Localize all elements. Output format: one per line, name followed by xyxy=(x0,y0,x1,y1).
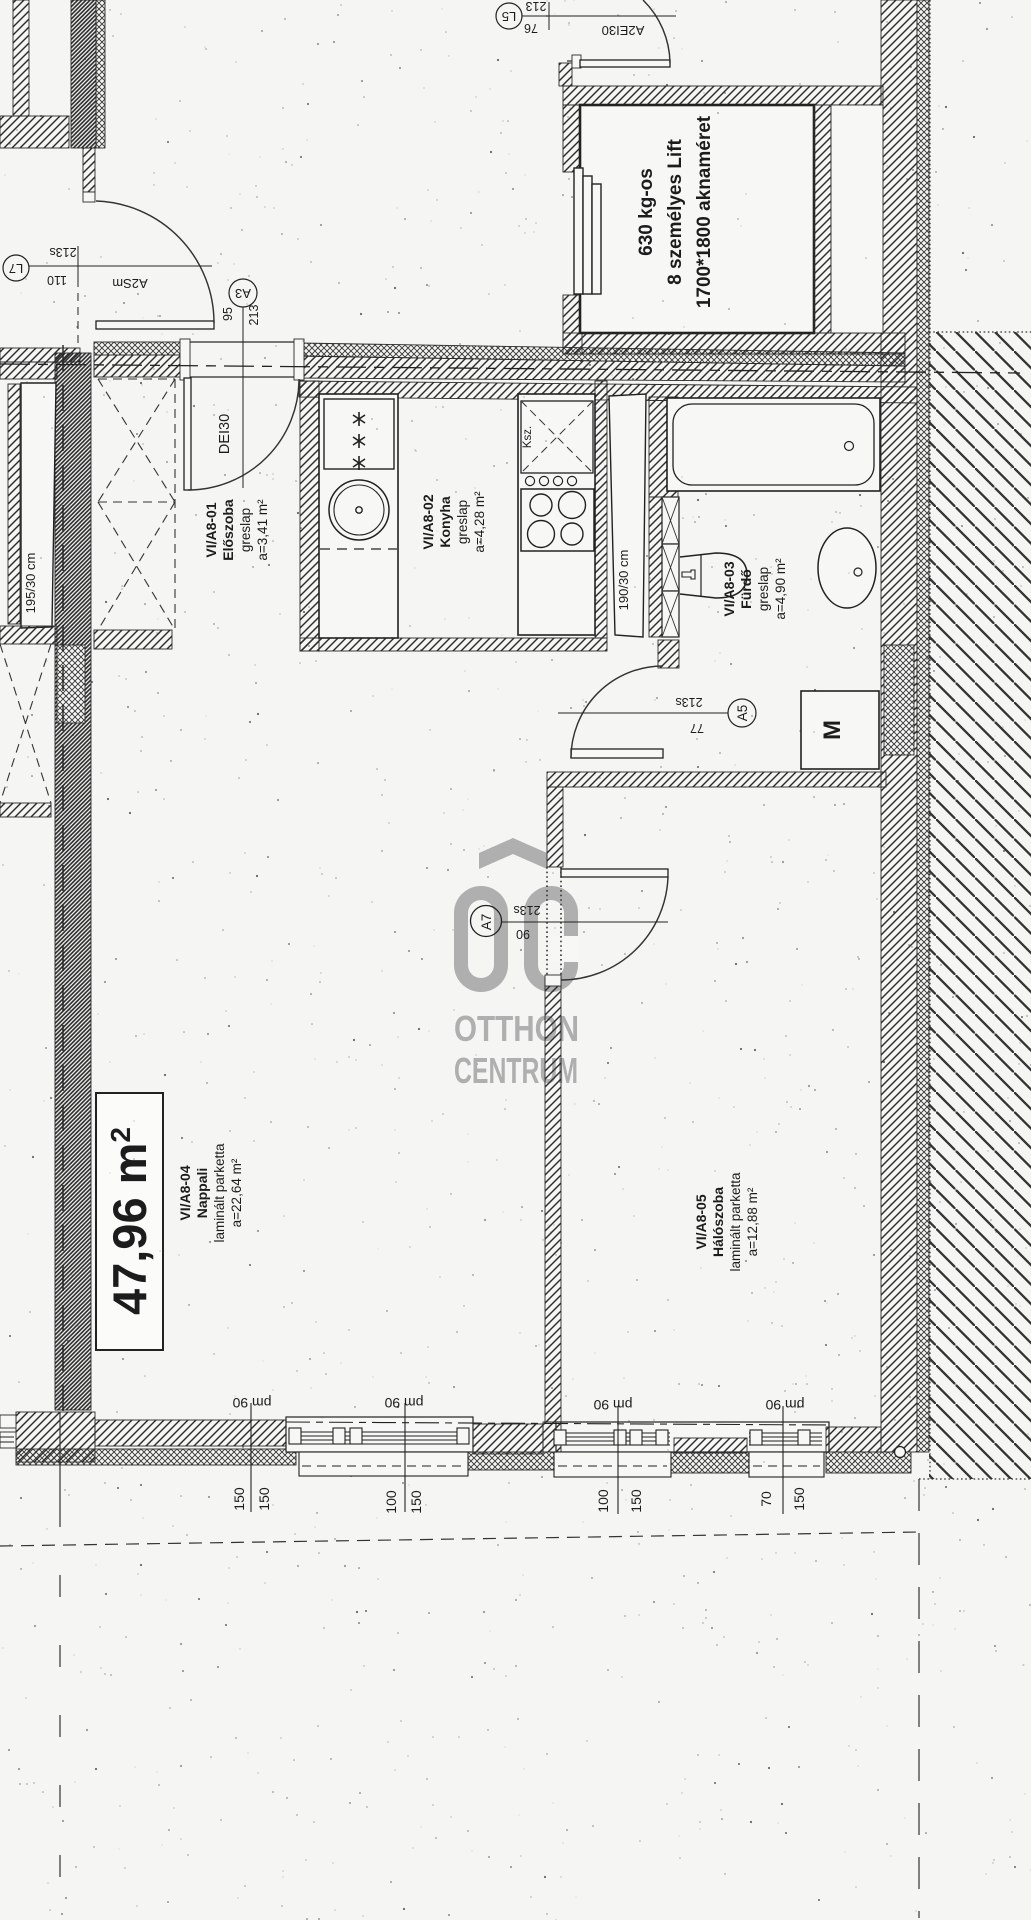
svg-text:pm 90: pm 90 xyxy=(765,1397,804,1413)
svg-text:70: 70 xyxy=(758,1491,774,1507)
svg-text:pm 90: pm 90 xyxy=(593,1397,632,1413)
svg-text:76: 76 xyxy=(524,21,538,35)
svg-text:150: 150 xyxy=(231,1487,247,1511)
svg-text:Fürdő: Fürdő xyxy=(738,569,754,609)
svg-text:L7: L7 xyxy=(9,261,23,276)
svg-text:VI/A8-04: VI/A8-04 xyxy=(177,1165,193,1220)
svg-text:100: 100 xyxy=(595,1489,611,1513)
svg-text:VI/A8-03: VI/A8-03 xyxy=(721,561,737,616)
svg-text:150: 150 xyxy=(408,1490,424,1514)
svg-text:L5: L5 xyxy=(502,9,516,24)
svg-text:213s: 213s xyxy=(675,695,702,709)
svg-text:A2EI30: A2EI30 xyxy=(602,23,645,38)
svg-text:Előszoba: Előszoba xyxy=(220,499,236,561)
svg-text:150: 150 xyxy=(791,1487,807,1511)
svg-text:Ksz.: Ksz. xyxy=(522,426,534,448)
svg-text:a=22,64 m²: a=22,64 m² xyxy=(229,1158,244,1227)
svg-text:greslap: greslap xyxy=(238,508,253,552)
svg-text:a=12,88 m²: a=12,88 m² xyxy=(745,1187,760,1256)
svg-text:A3: A3 xyxy=(235,286,251,301)
svg-text:greslap: greslap xyxy=(455,500,470,544)
svg-text:laminált parketta: laminált parketta xyxy=(212,1143,227,1243)
svg-text:VI/A8-02: VI/A8-02 xyxy=(420,494,436,549)
svg-text:77: 77 xyxy=(690,721,704,735)
svg-text:laminált parketta: laminált parketta xyxy=(728,1172,743,1272)
svg-text:DEI30: DEI30 xyxy=(217,414,233,454)
svg-text:213: 213 xyxy=(526,0,547,13)
svg-text:A7: A7 xyxy=(479,914,494,931)
svg-text:213s: 213s xyxy=(49,245,76,259)
svg-text:630 kg-os: 630 kg-os xyxy=(636,168,657,256)
svg-text:95: 95 xyxy=(221,307,235,321)
svg-text:8 személyes Lift: 8 személyes Lift xyxy=(665,138,686,284)
svg-text:Konyha: Konyha xyxy=(437,496,453,548)
svg-text:VI/A8-05: VI/A8-05 xyxy=(693,1194,709,1249)
svg-text:195/30 cm: 195/30 cm xyxy=(23,553,38,614)
svg-text:150: 150 xyxy=(256,1487,272,1511)
svg-text:213: 213 xyxy=(247,305,261,326)
svg-text:a=4,28 m²: a=4,28 m² xyxy=(472,491,487,553)
svg-text:a=4,90 m²: a=4,90 m² xyxy=(773,558,788,620)
svg-text:pm 90: pm 90 xyxy=(232,1395,271,1411)
svg-text:1700*1800 aknaméret: 1700*1800 aknaméret xyxy=(694,115,715,308)
svg-text:150: 150 xyxy=(628,1489,644,1513)
svg-text:Nappali: Nappali xyxy=(194,1168,210,1219)
svg-text:A2Sm: A2Sm xyxy=(112,276,147,291)
svg-text:47,96 m2: 47,96 m2 xyxy=(103,1127,156,1315)
svg-text:Hálószoba: Hálószoba xyxy=(710,1187,726,1257)
svg-text:pm 90: pm 90 xyxy=(384,1395,423,1411)
svg-text:a=3,41 m²: a=3,41 m² xyxy=(255,499,270,561)
svg-text:100: 100 xyxy=(383,1490,399,1514)
svg-text:VI/A8-01: VI/A8-01 xyxy=(203,502,219,557)
svg-text:110: 110 xyxy=(47,273,67,287)
svg-text:190/30 cm: 190/30 cm xyxy=(616,550,631,611)
svg-text:A5: A5 xyxy=(735,705,750,722)
svg-text:213s: 213s xyxy=(513,903,540,917)
svg-text:M: M xyxy=(819,720,846,740)
svg-text:greslap: greslap xyxy=(756,567,771,611)
svg-text:90: 90 xyxy=(516,927,530,941)
